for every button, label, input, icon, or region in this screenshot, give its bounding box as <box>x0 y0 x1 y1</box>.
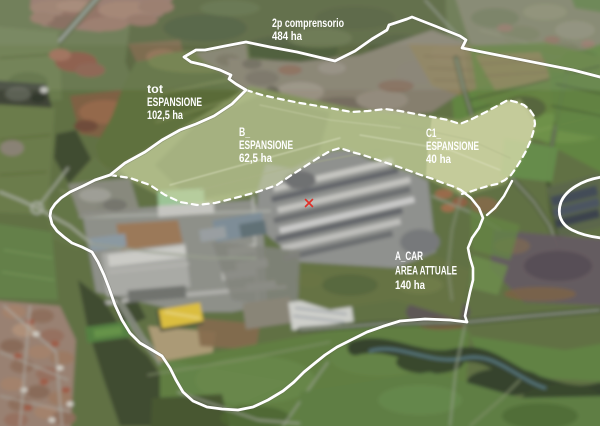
svg-text:C1_: C1_ <box>426 128 441 140</box>
svg-text:102,5 ha: 102,5 ha <box>147 110 183 122</box>
svg-text:ESPANSIONE: ESPANSIONE <box>239 140 293 152</box>
svg-text:140 ha: 140 ha <box>395 280 425 292</box>
svg-text:ESPANSIONE: ESPANSIONE <box>147 97 202 109</box>
svg-text:A_CAR: A_CAR <box>395 251 423 263</box>
svg-text:40 ha: 40 ha <box>426 154 452 166</box>
svg-text:AREA ATTUALE: AREA ATTUALE <box>395 266 457 278</box>
svg-text:484 ha: 484 ha <box>272 31 302 43</box>
svg-text:62,5 ha: 62,5 ha <box>239 153 273 165</box>
svg-text:2p comprensorio: 2p comprensorio <box>272 18 344 30</box>
svg-text:B_: B_ <box>239 127 250 139</box>
svg-text:tot: tot <box>147 84 163 96</box>
svg-text:ESPANSIONE: ESPANSIONE <box>426 141 479 153</box>
